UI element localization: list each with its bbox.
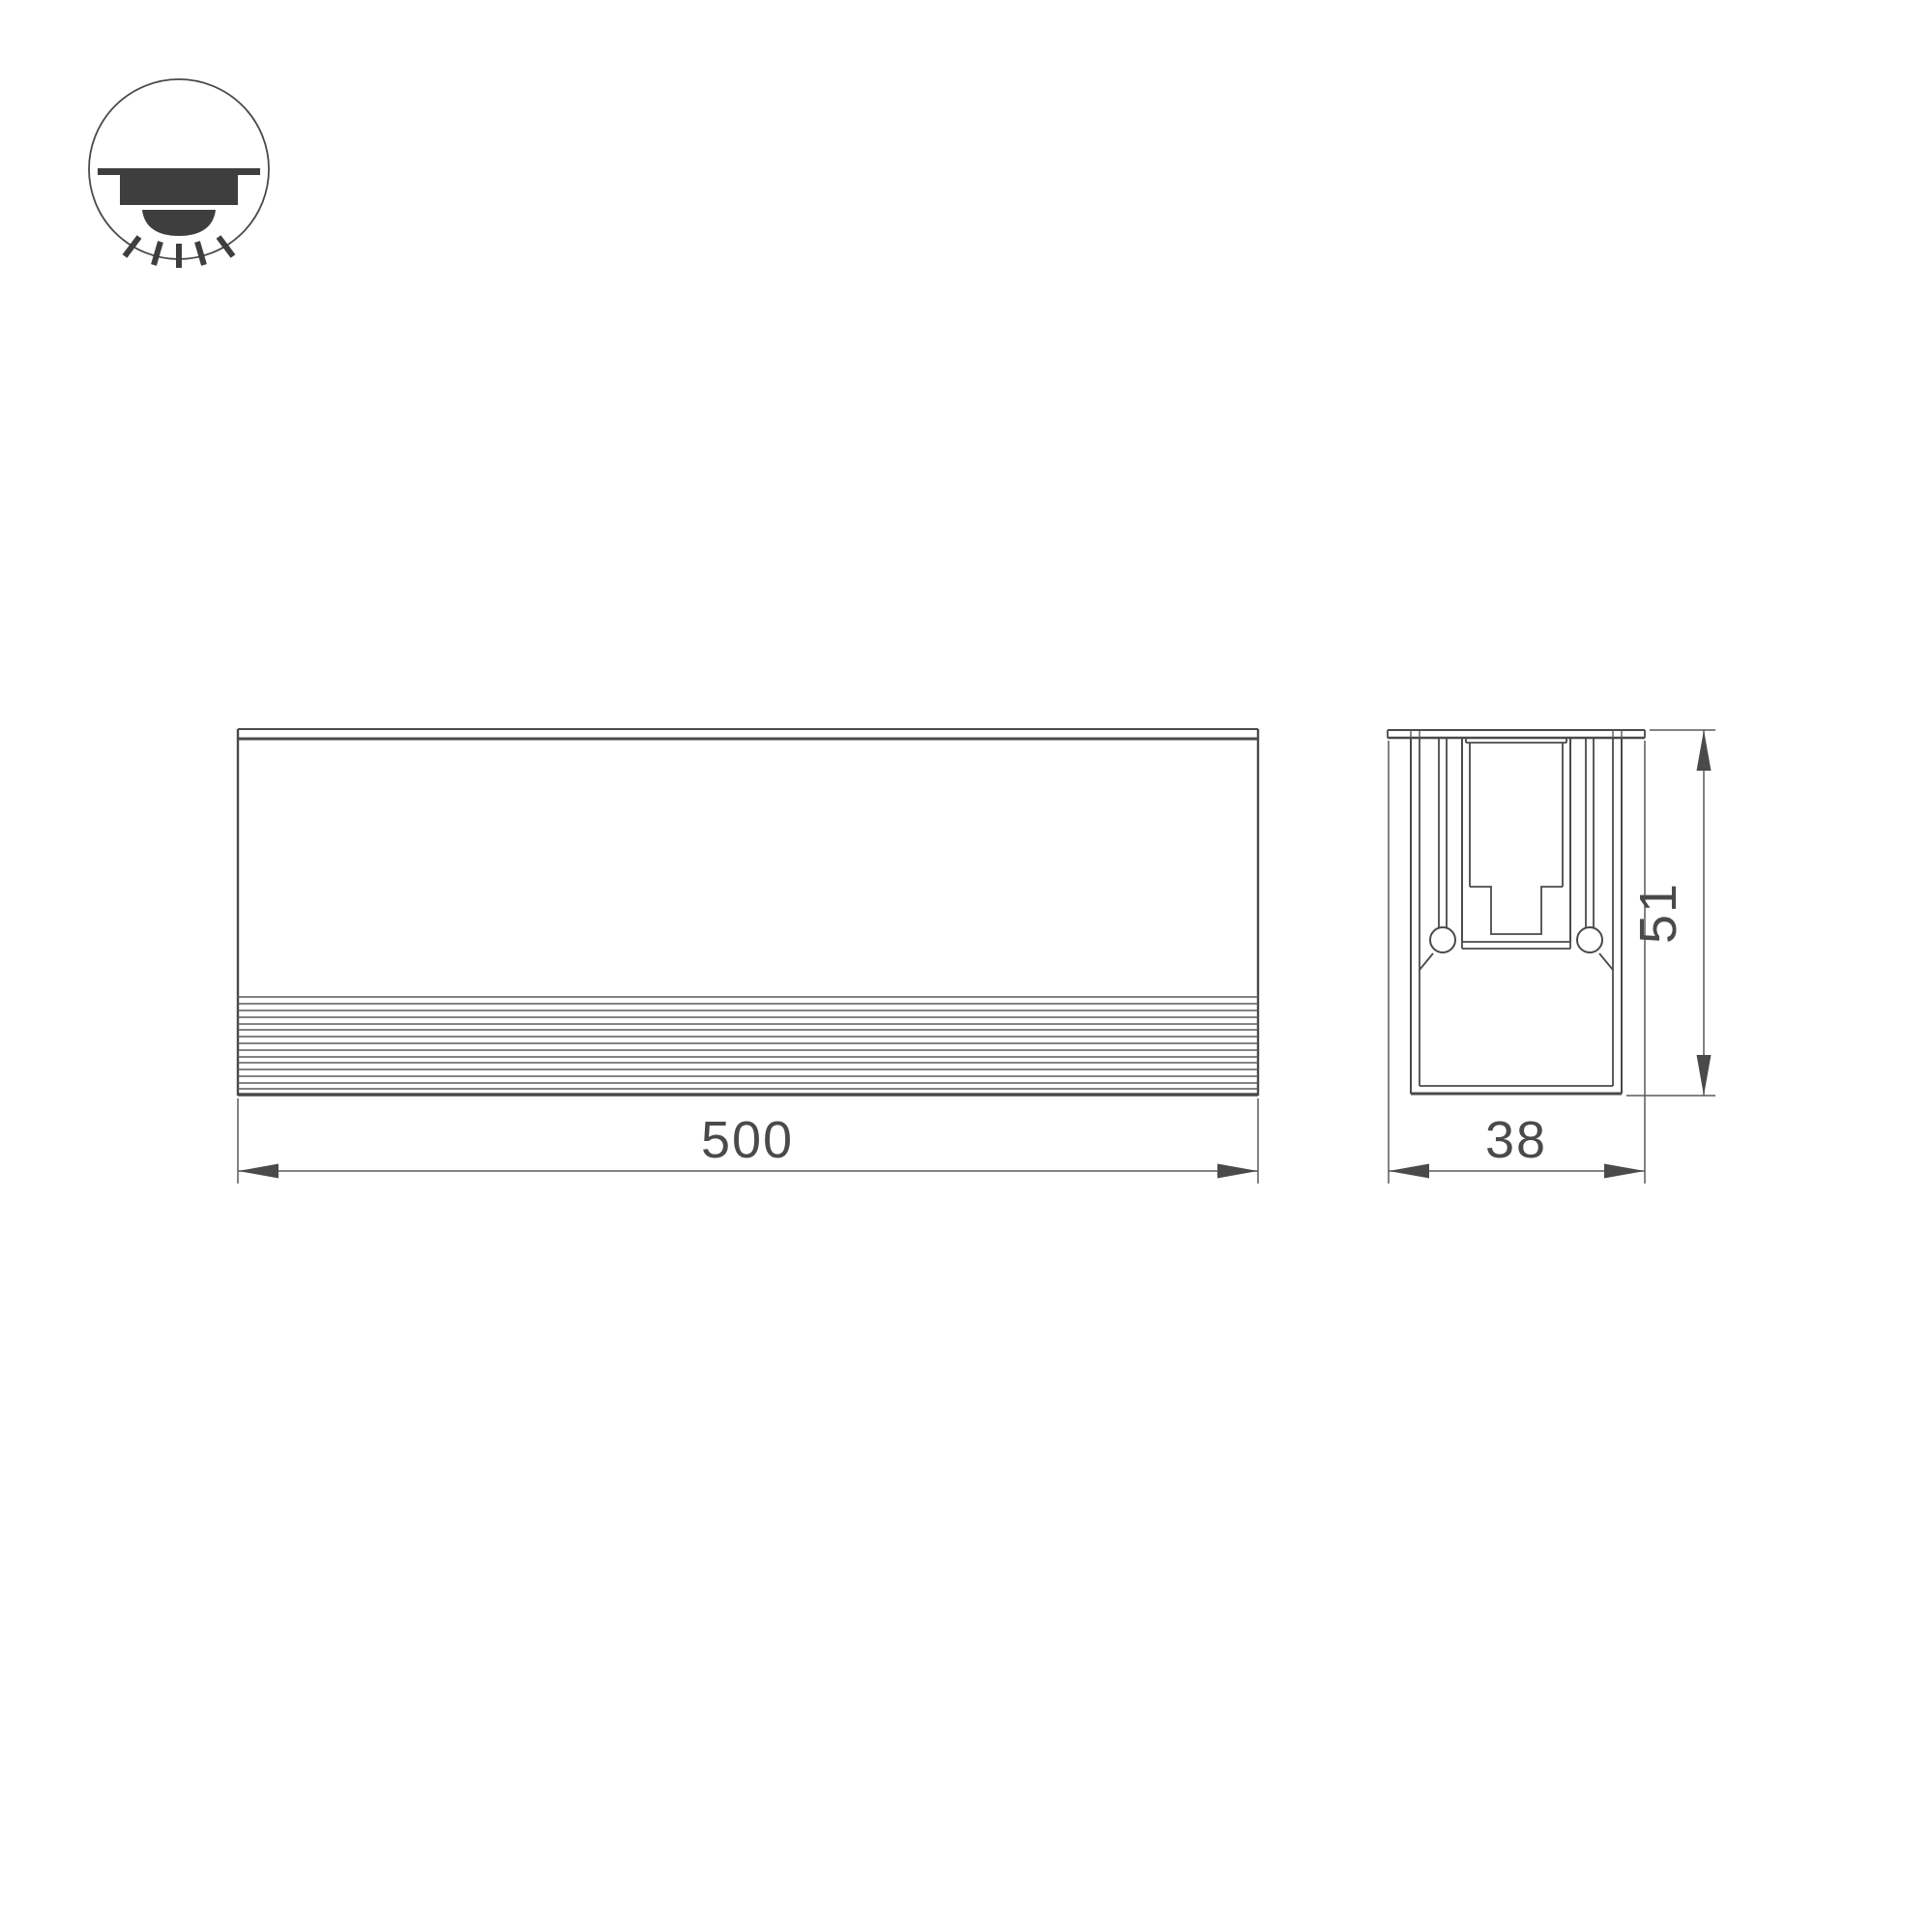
recessed-light-icon [89,79,269,268]
section-top-flange [1388,730,1645,738]
dimension-length: 500 [238,1098,1258,1184]
section-screw-boss-left [1430,927,1455,952]
technical-drawing-page: 500 38 51 [0,0,1932,1932]
dimension-height-arrow-bottom [1697,1055,1712,1096]
dimension-length-arrow-right [1217,1164,1258,1179]
dimension-length-arrow-left [238,1164,278,1179]
section-central-channel [1462,738,1570,949]
dimension-height-arrow-top [1697,730,1712,771]
ceiling-line-icon [98,168,260,175]
front-view [238,729,1258,1096]
dimension-width-arrow-left [1389,1164,1429,1179]
light-rays-icon [125,237,233,268]
section-view [1388,730,1645,1094]
section-led-shelf [1462,942,1570,949]
drawing-canvas: 500 38 51 [0,0,1932,1932]
dimension-length-value: 500 [701,1111,794,1169]
section-outer-shell [1411,738,1622,1094]
dimension-height-value: 51 [1629,882,1687,944]
dimension-width-arrow-right [1604,1164,1645,1179]
recessed-housing-icon [120,175,238,205]
dimension-width-value: 38 [1485,1111,1547,1169]
dimension-height: 51 [1626,730,1715,1096]
section-lower-chamber [1420,953,1613,970]
front-ribbed-diffuser-lines [238,997,1258,1089]
lamp-dome-icon [142,210,216,236]
section-screw-boss-right [1577,927,1602,952]
